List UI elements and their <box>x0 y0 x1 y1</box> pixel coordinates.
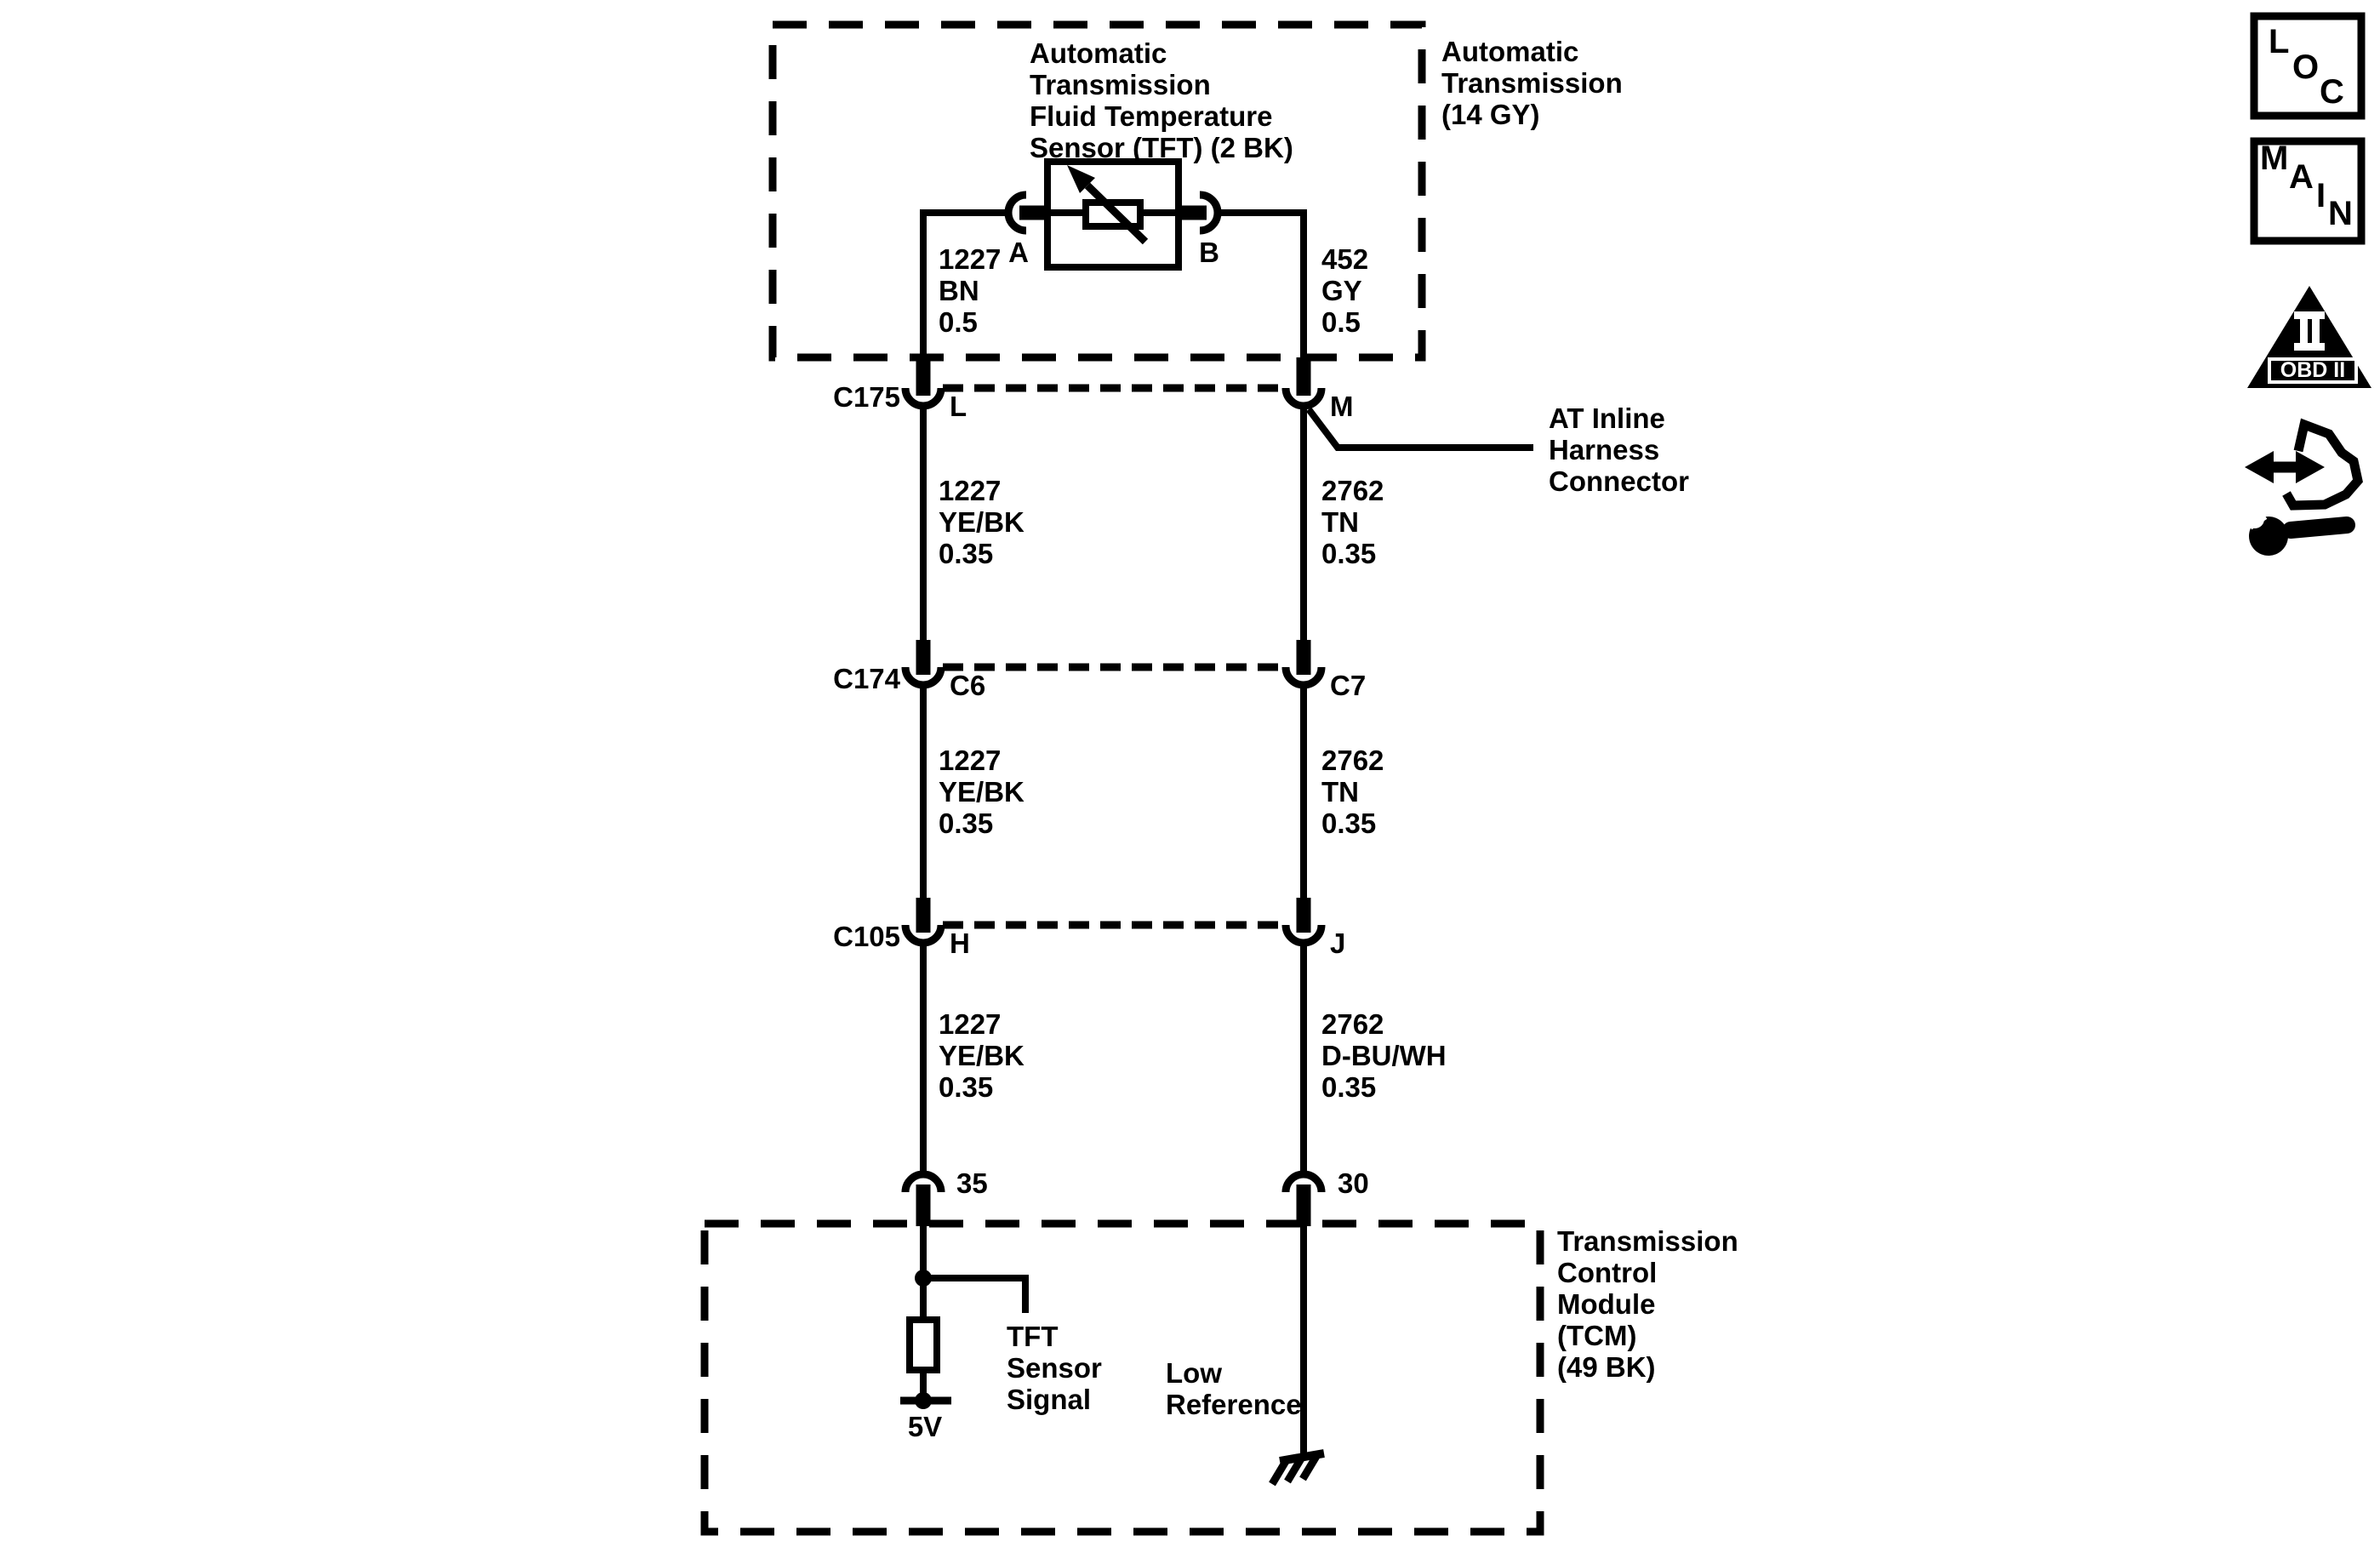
wire-label: YE/BK <box>939 776 1024 808</box>
tft-signal-branch <box>923 1278 1025 1313</box>
wire-label: 0.35 <box>939 538 993 569</box>
c105-name: C105 <box>833 921 900 952</box>
tcm-pin-35-label: 35 <box>956 1167 988 1199</box>
obd2-numeral-bar <box>2300 317 2308 345</box>
transmission-label-line: Transmission <box>1441 67 1623 99</box>
wire-label: 1227 <box>939 243 1001 275</box>
wire-label: D-BU/WH <box>1321 1040 1447 1071</box>
wire-label: 452 <box>1321 243 1368 275</box>
transmission-label-line: (14 GY) <box>1441 99 1540 130</box>
c175-pin-m-label: M <box>1330 391 1354 422</box>
low-reference-label-line: Reference <box>1166 1389 1302 1420</box>
sensor-pin-b-label: B <box>1199 237 1219 268</box>
tcm-dashed-box <box>705 1224 1540 1532</box>
sensor-label-line: Transmission <box>1030 69 1211 100</box>
tcm-label-line: (49 BK) <box>1557 1351 1656 1383</box>
c105-pin-h-label: H <box>950 928 970 959</box>
connector-c105: C105 H J <box>833 898 1345 959</box>
loc-letter: L <box>2269 23 2289 60</box>
c175-name: C175 <box>833 381 900 413</box>
wire-label: GY <box>1321 275 1362 306</box>
wire-label: 0.35 <box>1321 538 1376 569</box>
tft-sensor: Automatic Transmission Fluid Temperature… <box>1008 37 1293 268</box>
c105-pin-j-label: J <box>1330 928 1345 959</box>
wire-label: YE/BK <box>939 1040 1024 1071</box>
ground-tooth <box>1272 1458 1287 1484</box>
main-icon[interactable]: M A I N <box>2254 140 2361 241</box>
sensor-label-line: Fluid Temperature <box>1030 100 1272 132</box>
obd2-icon[interactable]: OBD II <box>2247 286 2371 388</box>
double-arrow-left-head <box>2245 451 2274 483</box>
sensor-pin-a-label: A <box>1008 237 1029 268</box>
tft-signal-label-line: TFT <box>1007 1321 1058 1352</box>
wire-label: 0.35 <box>1321 1071 1376 1103</box>
wiring-diagram-svg: Automatic Transmission (14 GY) Automatic… <box>0 0 2380 1564</box>
wire-label: 0.5 <box>939 306 978 338</box>
obd2-plate-text: OBD II <box>2280 358 2345 382</box>
obd2-numeral-cap <box>2294 311 2325 319</box>
5v-junction-dot <box>915 1392 932 1409</box>
connector-c174: C174 C6 C7 <box>833 640 1366 701</box>
wire-label: 0.5 <box>1321 306 1361 338</box>
tft-signal-label-line: Signal <box>1007 1384 1091 1415</box>
tft-signal-label-line: Sensor <box>1007 1352 1102 1384</box>
main-letter: M <box>2260 140 2288 177</box>
pullup-resistor <box>910 1320 937 1370</box>
obd2-numeral-cap <box>2294 343 2325 351</box>
main-letter: A <box>2289 158 2314 196</box>
low-reference-label-line: Low <box>1166 1357 1222 1389</box>
tcm-module: 35 30 5V TFT Sensor Signal Low Reference… <box>705 1167 1738 1532</box>
tcm-label-line: Transmission <box>1557 1225 1738 1257</box>
tcm-label-line: (TCM) <box>1557 1320 1636 1351</box>
wrench-handle <box>2291 525 2347 530</box>
wire-right-top <box>1218 213 1304 361</box>
loc-icon[interactable]: L O C <box>2254 16 2361 116</box>
c174-name: C174 <box>833 663 901 694</box>
sensor-label-line: Automatic <box>1030 37 1167 69</box>
wire-label: YE/BK <box>939 506 1024 538</box>
chassis-ground-symbol <box>1272 1453 1324 1484</box>
tcm-pin-30-label: 30 <box>1338 1167 1369 1199</box>
main-letter: I <box>2316 177 2326 214</box>
c174-pin-c7-label: C7 <box>1330 670 1366 701</box>
transmission-label-line: Automatic <box>1441 36 1578 67</box>
tcm-label-line: Module <box>1557 1288 1655 1320</box>
obd2-numeral-bar <box>2312 317 2320 345</box>
wire-label: 0.35 <box>1321 808 1376 839</box>
tcm-label-line: Control <box>1557 1257 1657 1288</box>
c174-pin-c6-label: C6 <box>950 670 985 701</box>
wire-label: 2762 <box>1321 1008 1384 1040</box>
loc-letter: O <box>2292 49 2319 86</box>
inline-note-line: Connector <box>1549 465 1689 497</box>
double-arrow-right-head <box>2296 451 2325 483</box>
wire-label: 0.35 <box>939 808 993 839</box>
5v-label: 5V <box>908 1411 942 1442</box>
inline-note-line: Harness <box>1549 434 1659 465</box>
wire-label: TN <box>1321 776 1359 808</box>
wire-label: 2762 <box>1321 745 1384 776</box>
loc-letter: C <box>2320 73 2344 111</box>
wire-label: 2762 <box>1321 475 1384 506</box>
wire-label: 1227 <box>939 745 1001 776</box>
wiring-diagram-page: Automatic Transmission (14 GY) Automatic… <box>0 0 2380 1564</box>
inline-note-line: AT Inline <box>1549 402 1665 434</box>
wire-label: 1227 <box>939 1008 1001 1040</box>
wire-label: BN <box>939 275 979 306</box>
wire-label: TN <box>1321 506 1359 538</box>
wire-label: 0.35 <box>939 1071 993 1103</box>
c175-pin-l-label: L <box>950 391 967 422</box>
wire-label: 1227 <box>939 475 1001 506</box>
main-letter: N <box>2328 195 2353 232</box>
datalink-wrench-icon[interactable] <box>2241 425 2358 556</box>
